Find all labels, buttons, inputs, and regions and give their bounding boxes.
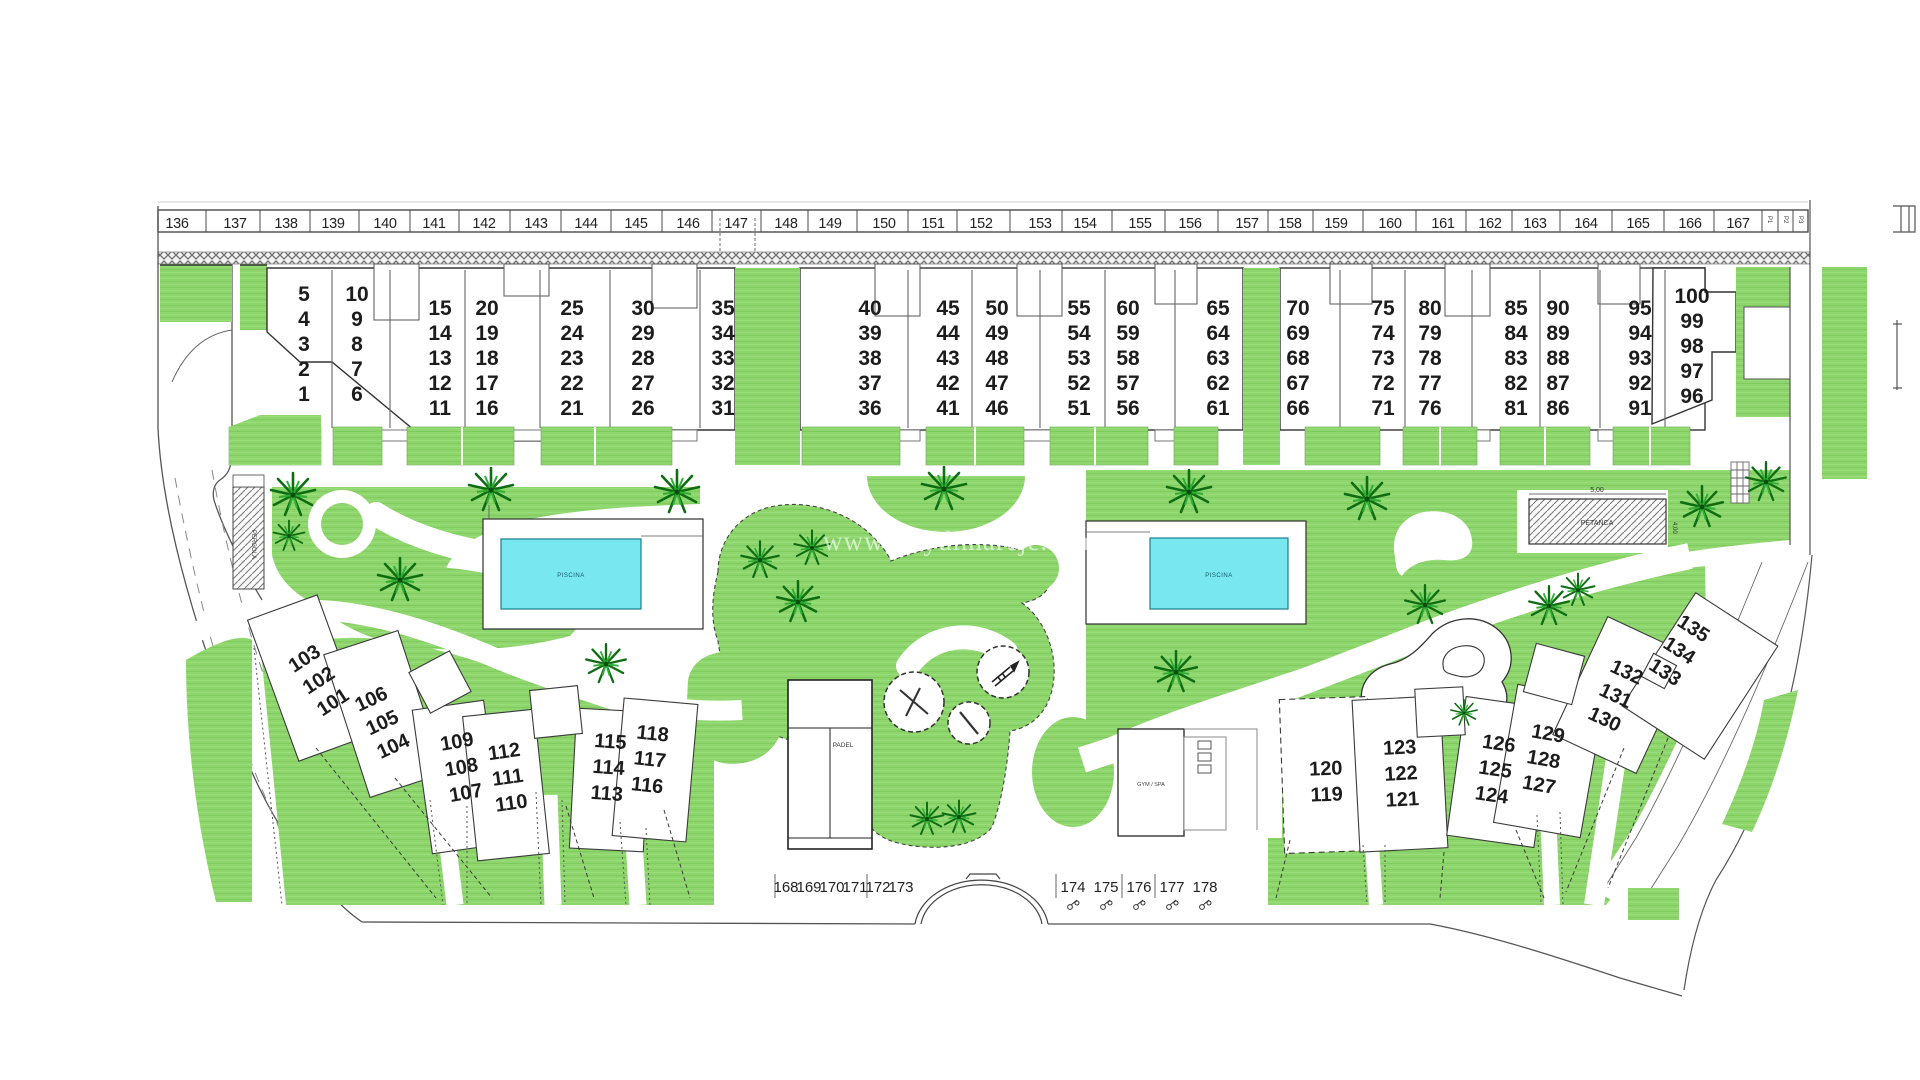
svg-text:45: 45 bbox=[936, 297, 960, 320]
svg-text:94: 94 bbox=[1628, 322, 1652, 345]
svg-text:159: 159 bbox=[1324, 216, 1348, 232]
svg-text:21: 21 bbox=[560, 397, 584, 420]
svg-text:28: 28 bbox=[631, 347, 655, 370]
svg-text:29: 29 bbox=[631, 322, 654, 345]
svg-text:112: 112 bbox=[487, 739, 522, 765]
svg-text:113: 113 bbox=[590, 782, 624, 806]
svg-text:164: 164 bbox=[1574, 216, 1598, 232]
svg-text:71: 71 bbox=[1371, 397, 1395, 420]
svg-text:83: 83 bbox=[1504, 347, 1527, 370]
svg-text:64: 64 bbox=[1206, 322, 1230, 345]
svg-text:85: 85 bbox=[1504, 297, 1528, 320]
svg-text:123: 123 bbox=[1382, 736, 1416, 760]
svg-text:146: 146 bbox=[676, 216, 700, 232]
svg-text:33: 33 bbox=[711, 347, 734, 370]
svg-text:139: 139 bbox=[321, 216, 345, 232]
svg-text:PISCINA: PISCINA bbox=[1205, 573, 1233, 579]
svg-text:155: 155 bbox=[1128, 216, 1152, 232]
svg-text:51: 51 bbox=[1067, 397, 1091, 420]
svg-text:PETANCA: PETANCA bbox=[1581, 520, 1614, 527]
svg-text:172: 172 bbox=[865, 879, 890, 896]
svg-text:52: 52 bbox=[1067, 372, 1090, 395]
svg-text:178: 178 bbox=[1192, 879, 1217, 896]
svg-text:117: 117 bbox=[633, 747, 667, 772]
svg-text:93: 93 bbox=[1628, 347, 1651, 370]
svg-text:170: 170 bbox=[819, 879, 844, 896]
svg-text:27: 27 bbox=[631, 372, 654, 395]
svg-text:81: 81 bbox=[1504, 397, 1528, 420]
svg-text:84: 84 bbox=[1504, 322, 1528, 345]
svg-text:12: 12 bbox=[428, 372, 451, 395]
svg-text:32: 32 bbox=[711, 372, 734, 395]
svg-text:7: 7 bbox=[351, 358, 363, 381]
svg-text:160: 160 bbox=[1378, 216, 1402, 232]
svg-text:119: 119 bbox=[1310, 783, 1343, 806]
svg-text:38: 38 bbox=[858, 347, 882, 370]
svg-text:44: 44 bbox=[936, 322, 960, 345]
svg-text:55: 55 bbox=[1067, 297, 1091, 320]
svg-text:74: 74 bbox=[1371, 322, 1395, 345]
svg-text:118: 118 bbox=[635, 721, 669, 746]
svg-text:99: 99 bbox=[1680, 310, 1703, 333]
svg-text:111: 111 bbox=[491, 765, 525, 791]
svg-text:75: 75 bbox=[1371, 297, 1395, 320]
svg-text:PADEL: PADEL bbox=[833, 742, 854, 749]
svg-text:4,00: 4,00 bbox=[1671, 522, 1677, 534]
svg-text:175: 175 bbox=[1093, 879, 1118, 896]
svg-text:49: 49 bbox=[985, 322, 1008, 345]
svg-text:120: 120 bbox=[1309, 757, 1343, 780]
svg-text:126: 126 bbox=[1481, 731, 1517, 757]
svg-text:138: 138 bbox=[274, 216, 298, 232]
svg-text:19: 19 bbox=[475, 322, 498, 345]
svg-text:20: 20 bbox=[475, 297, 498, 320]
svg-text:140: 140 bbox=[373, 216, 397, 232]
svg-text:115: 115 bbox=[594, 730, 628, 754]
svg-text:PERGOLA: PERGOLA bbox=[250, 530, 256, 559]
svg-text:77: 77 bbox=[1418, 372, 1441, 395]
svg-text:9: 9 bbox=[351, 308, 363, 331]
svg-text:147: 147 bbox=[724, 216, 748, 232]
svg-text:86: 86 bbox=[1546, 397, 1569, 420]
svg-text:59: 59 bbox=[1116, 322, 1139, 345]
svg-text:48: 48 bbox=[985, 347, 1009, 370]
svg-text:34: 34 bbox=[711, 322, 735, 345]
svg-text:4: 4 bbox=[298, 308, 310, 331]
svg-text:8: 8 bbox=[351, 333, 363, 356]
svg-text:148: 148 bbox=[774, 216, 798, 232]
svg-text:69: 69 bbox=[1286, 322, 1309, 345]
svg-text:25: 25 bbox=[560, 297, 584, 320]
svg-text:89: 89 bbox=[1546, 322, 1569, 345]
svg-text:73: 73 bbox=[1371, 347, 1394, 370]
svg-text:151: 151 bbox=[921, 216, 945, 232]
svg-text:142: 142 bbox=[472, 216, 496, 232]
svg-text:58: 58 bbox=[1116, 347, 1140, 370]
svg-text:153: 153 bbox=[1028, 216, 1052, 232]
svg-text:137: 137 bbox=[223, 216, 247, 232]
svg-text:30: 30 bbox=[631, 297, 654, 320]
svg-text:149: 149 bbox=[818, 216, 842, 232]
svg-text:114: 114 bbox=[592, 756, 627, 780]
svg-text:78: 78 bbox=[1418, 347, 1442, 370]
svg-text:40: 40 bbox=[858, 297, 881, 320]
svg-text:10: 10 bbox=[345, 283, 368, 306]
svg-text:18: 18 bbox=[475, 347, 499, 370]
svg-text:63: 63 bbox=[1206, 347, 1229, 370]
svg-text:168: 168 bbox=[773, 879, 798, 896]
svg-text:152: 152 bbox=[969, 216, 993, 232]
svg-text:43: 43 bbox=[936, 347, 959, 370]
svg-text:116: 116 bbox=[630, 773, 664, 798]
svg-text:97: 97 bbox=[1680, 360, 1703, 383]
svg-text:47: 47 bbox=[985, 372, 1008, 395]
svg-text:1: 1 bbox=[298, 383, 310, 406]
svg-text:24: 24 bbox=[560, 322, 584, 345]
svg-text:35: 35 bbox=[711, 297, 735, 320]
svg-text:www.staydimareje.com: www.staydimareje.com bbox=[823, 526, 1098, 556]
svg-text:26: 26 bbox=[631, 397, 654, 420]
svg-text:76: 76 bbox=[1418, 397, 1441, 420]
svg-text:37: 37 bbox=[858, 372, 881, 395]
svg-text:50: 50 bbox=[985, 297, 1008, 320]
svg-text:88: 88 bbox=[1546, 347, 1570, 370]
svg-text:14: 14 bbox=[428, 322, 452, 345]
svg-text:15: 15 bbox=[428, 297, 452, 320]
svg-text:23: 23 bbox=[560, 347, 583, 370]
svg-text:2: 2 bbox=[298, 358, 310, 381]
svg-text:3: 3 bbox=[298, 333, 310, 356]
svg-text:176: 176 bbox=[1126, 879, 1151, 896]
svg-text:121: 121 bbox=[1385, 788, 1419, 812]
svg-text:154: 154 bbox=[1073, 216, 1097, 232]
svg-text:5,00: 5,00 bbox=[1590, 487, 1604, 494]
svg-text:173: 173 bbox=[888, 879, 913, 896]
svg-text:167: 167 bbox=[1726, 216, 1750, 232]
svg-text:72: 72 bbox=[1371, 372, 1394, 395]
svg-text:17: 17 bbox=[475, 372, 498, 395]
svg-text:66: 66 bbox=[1286, 397, 1309, 420]
svg-text:46: 46 bbox=[985, 397, 1008, 420]
svg-text:166: 166 bbox=[1678, 216, 1702, 232]
svg-text:16: 16 bbox=[475, 397, 498, 420]
svg-text:PISCINA: PISCINA bbox=[557, 573, 585, 579]
svg-text:60: 60 bbox=[1116, 297, 1139, 320]
svg-text:145: 145 bbox=[624, 216, 648, 232]
svg-text:161: 161 bbox=[1431, 216, 1455, 232]
svg-text:141: 141 bbox=[422, 216, 446, 232]
svg-text:96: 96 bbox=[1680, 385, 1703, 408]
svg-text:56: 56 bbox=[1116, 397, 1139, 420]
svg-text:5: 5 bbox=[298, 283, 310, 306]
svg-text:80: 80 bbox=[1418, 297, 1441, 320]
svg-text:163: 163 bbox=[1523, 216, 1547, 232]
svg-text:68: 68 bbox=[1286, 347, 1310, 370]
svg-text:57: 57 bbox=[1116, 372, 1139, 395]
svg-text:11: 11 bbox=[429, 397, 452, 420]
svg-text:162: 162 bbox=[1478, 216, 1502, 232]
svg-text:158: 158 bbox=[1278, 216, 1302, 232]
svg-text:100: 100 bbox=[1674, 285, 1709, 308]
svg-text:143: 143 bbox=[524, 216, 548, 232]
svg-text:110: 110 bbox=[494, 790, 529, 816]
svg-text:150: 150 bbox=[872, 216, 896, 232]
svg-text:70: 70 bbox=[1286, 297, 1309, 320]
svg-text:98: 98 bbox=[1680, 335, 1704, 358]
svg-text:90: 90 bbox=[1546, 297, 1569, 320]
svg-text:P2: P2 bbox=[1782, 216, 1788, 224]
svg-text:165: 165 bbox=[1626, 216, 1650, 232]
svg-text:41: 41 bbox=[936, 397, 960, 420]
svg-text:79: 79 bbox=[1418, 322, 1441, 345]
svg-text:54: 54 bbox=[1067, 322, 1091, 345]
svg-text:156: 156 bbox=[1178, 216, 1202, 232]
svg-text:39: 39 bbox=[858, 322, 881, 345]
svg-text:125: 125 bbox=[1477, 757, 1513, 783]
svg-text:157: 157 bbox=[1235, 216, 1259, 232]
svg-text:36: 36 bbox=[858, 397, 881, 420]
svg-text:62: 62 bbox=[1206, 372, 1229, 395]
svg-text:169: 169 bbox=[796, 879, 821, 896]
svg-text:171: 171 bbox=[842, 879, 867, 896]
svg-text:GYM / SPA: GYM / SPA bbox=[1137, 782, 1165, 788]
svg-text:53: 53 bbox=[1067, 347, 1090, 370]
svg-text:122: 122 bbox=[1384, 762, 1418, 786]
svg-text:13: 13 bbox=[428, 347, 451, 370]
svg-text:95: 95 bbox=[1628, 297, 1652, 320]
svg-text:31: 31 bbox=[711, 397, 735, 420]
svg-text:174: 174 bbox=[1060, 879, 1085, 896]
svg-text:144: 144 bbox=[574, 216, 598, 232]
svg-text:65: 65 bbox=[1206, 297, 1230, 320]
svg-text:136: 136 bbox=[165, 216, 189, 232]
svg-text:67: 67 bbox=[1286, 372, 1309, 395]
svg-text:P1: P1 bbox=[1766, 216, 1772, 224]
svg-text:87: 87 bbox=[1546, 372, 1569, 395]
svg-text:82: 82 bbox=[1504, 372, 1527, 395]
svg-text:P3: P3 bbox=[1797, 216, 1803, 224]
svg-text:91: 91 bbox=[1628, 397, 1652, 420]
svg-text:42: 42 bbox=[936, 372, 959, 395]
svg-text:61: 61 bbox=[1206, 397, 1230, 420]
svg-text:22: 22 bbox=[560, 372, 583, 395]
svg-text:6: 6 bbox=[351, 383, 363, 406]
svg-text:92: 92 bbox=[1628, 372, 1651, 395]
svg-text:177: 177 bbox=[1159, 879, 1184, 896]
